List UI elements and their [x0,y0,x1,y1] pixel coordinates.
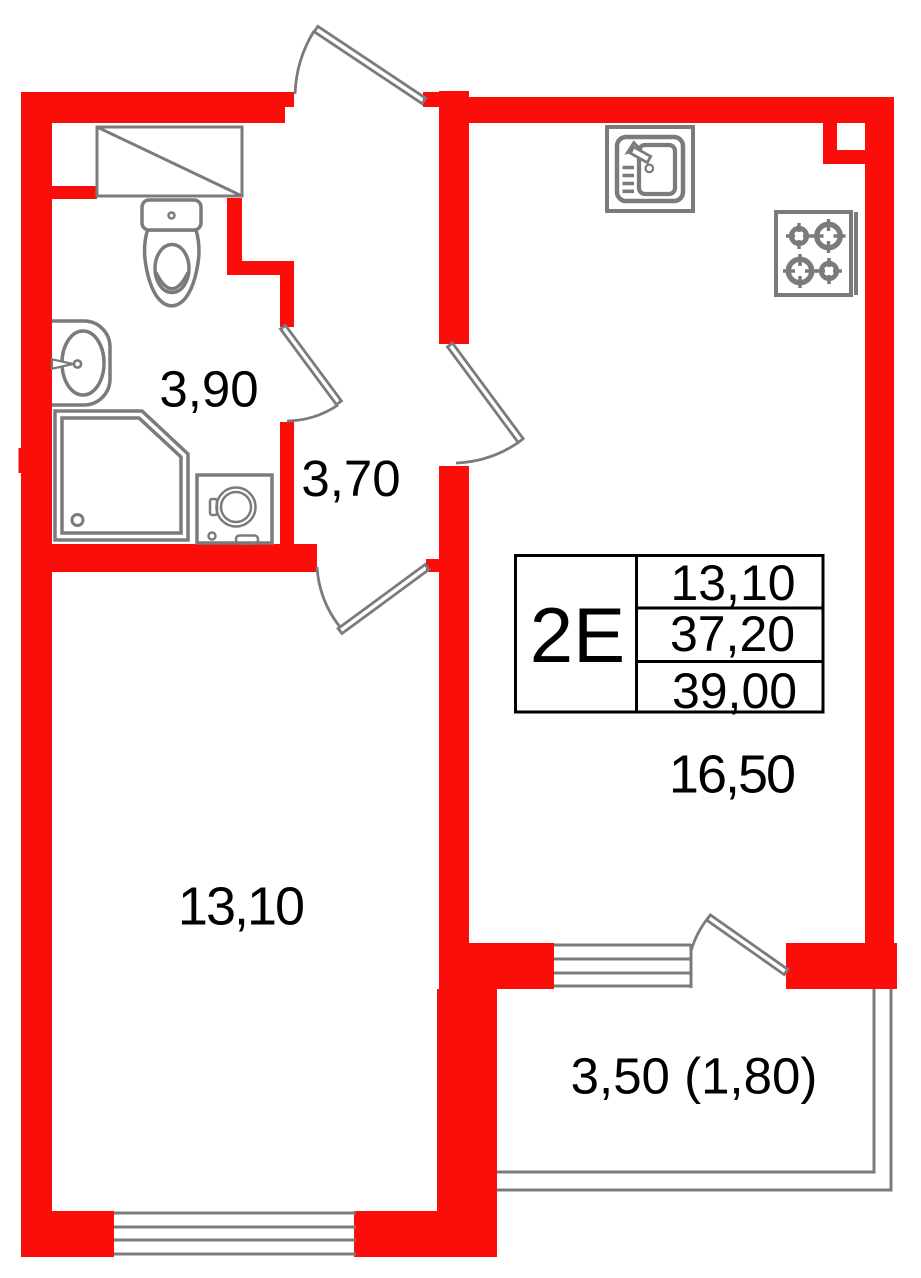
svg-text:16,50: 16,50 [669,745,794,805]
svg-text:2E: 2E [530,591,625,679]
svg-text:3,90: 3,90 [159,361,258,418]
svg-text:3,50 (1,80): 3,50 (1,80) [571,1048,818,1105]
svg-text:37,20: 37,20 [670,606,795,662]
svg-text:13,10: 13,10 [178,877,303,937]
svg-text:39,00: 39,00 [672,663,797,719]
svg-text:13,10: 13,10 [670,555,795,611]
svg-text:3,70: 3,70 [301,450,400,507]
